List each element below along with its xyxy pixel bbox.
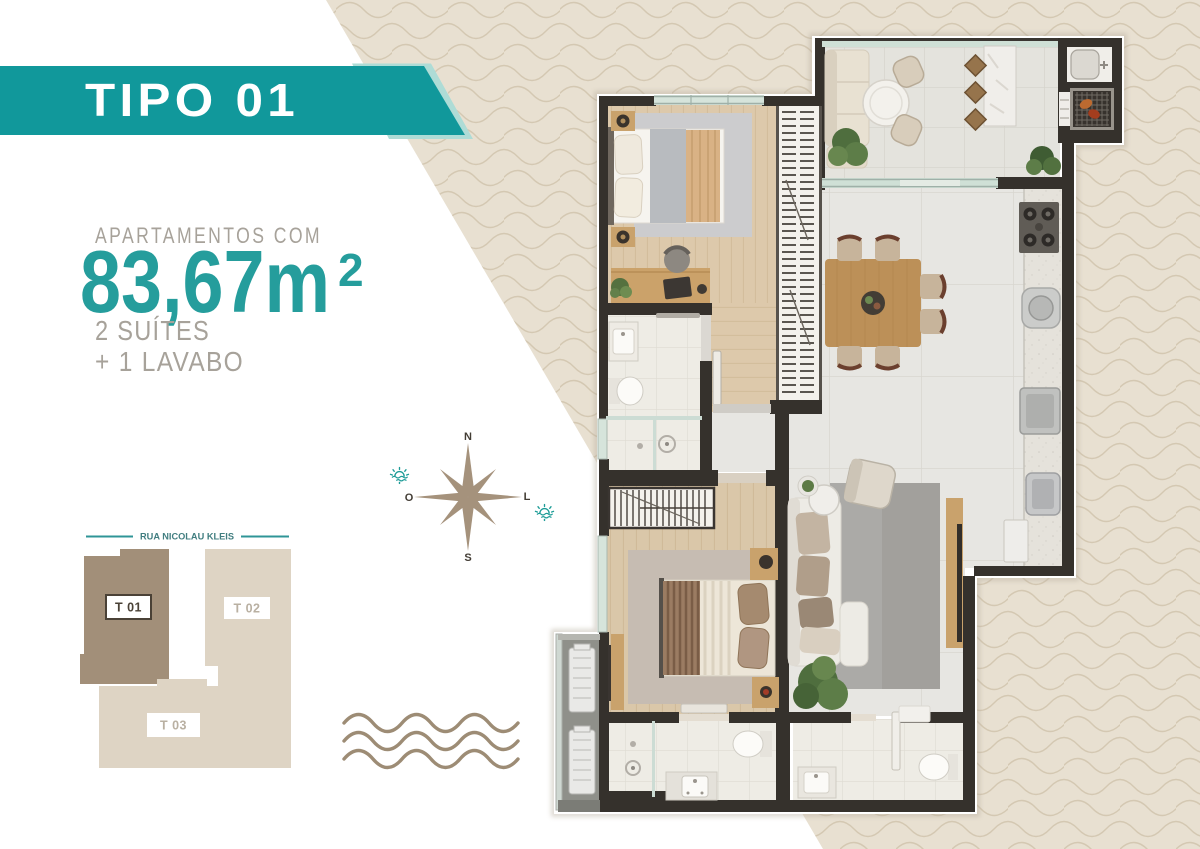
svg-text:T 01: T 01 [115,601,142,615]
svg-text:T 02: T 02 [233,602,260,616]
svg-text:N: N [464,431,472,443]
svg-text:TIPO 01: TIPO 01 [85,74,299,126]
svg-text:L: L [524,491,531,503]
svg-text:O: O [405,492,414,504]
svg-text:+ 1 LAVABO: + 1 LAVABO [95,346,244,377]
svg-text:T 03: T 03 [160,719,187,733]
svg-text:S: S [464,552,471,564]
svg-text:2 SUÍTES: 2 SUÍTES [95,315,210,346]
svg-text:RUA NICOLAU KLEIS: RUA NICOLAU KLEIS [140,532,234,543]
svg-text:2: 2 [338,244,364,296]
